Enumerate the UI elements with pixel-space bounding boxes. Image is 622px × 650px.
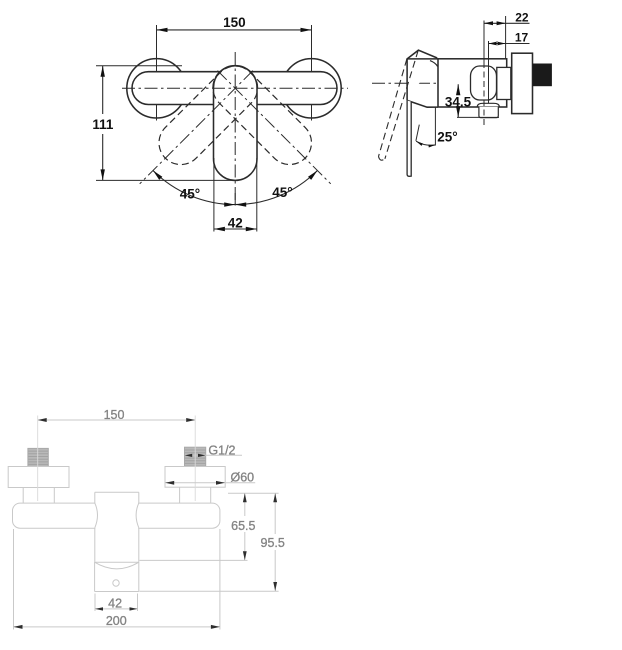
svg-text:150: 150	[223, 15, 246, 30]
svg-text:150: 150	[104, 408, 125, 422]
svg-text:111: 111	[92, 117, 114, 132]
svg-text:G1/2: G1/2	[208, 444, 235, 458]
svg-text:25°: 25°	[437, 129, 457, 144]
svg-text:95.5: 95.5	[261, 536, 285, 550]
svg-text:45°: 45°	[272, 185, 292, 200]
svg-text:42: 42	[228, 216, 243, 231]
svg-text:65.5: 65.5	[231, 519, 255, 533]
svg-text:Ø60: Ø60	[231, 471, 255, 485]
svg-text:22: 22	[515, 11, 529, 25]
svg-text:200: 200	[106, 614, 127, 628]
svg-text:45°: 45°	[180, 187, 200, 202]
svg-text:42: 42	[108, 596, 122, 610]
svg-text:34.5: 34.5	[445, 94, 472, 109]
svg-text:17: 17	[515, 30, 529, 44]
